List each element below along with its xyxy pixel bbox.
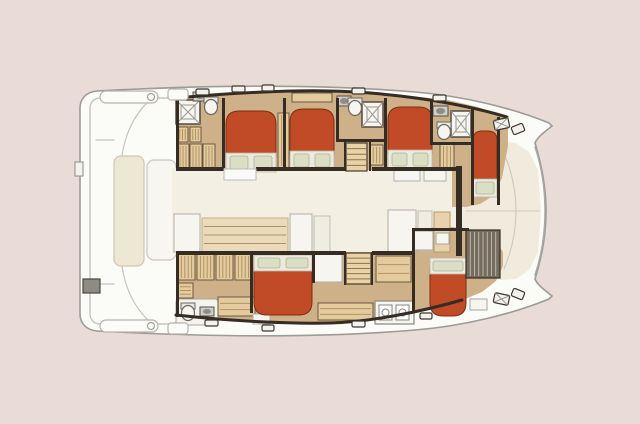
stbd-fwd-wardrobe	[466, 230, 500, 278]
port-closet-3	[203, 144, 215, 169]
floor-plan	[0, 0, 640, 424]
stbd-aft-bulkhead	[176, 251, 179, 317]
port-aft-toilet	[204, 97, 218, 115]
port-wall-3	[336, 98, 339, 142]
port-closet-2	[190, 144, 202, 169]
deck-hatch-7	[262, 325, 274, 331]
salon-cabinet-left	[174, 214, 200, 252]
stbd-wall-2	[312, 253, 315, 283]
stbd-cabinet	[314, 254, 342, 282]
port-wall-1	[222, 98, 225, 168]
port-wall-2	[283, 98, 286, 168]
salon-galley-wood	[434, 212, 450, 252]
stbd-aft-sink	[200, 307, 214, 316]
port-stair-wall-2	[369, 141, 371, 171]
port-forepeak-wall-left	[471, 107, 474, 205]
stbd-stair-wall-1	[344, 252, 346, 285]
engine-hatch-port	[168, 89, 188, 100]
cockpit-bench	[114, 156, 144, 266]
stbd-closet-1	[178, 254, 195, 280]
galley-counter	[376, 256, 411, 282]
deck-hatch-4	[352, 88, 365, 94]
deck-hatch-8	[352, 321, 365, 327]
port-closet-5	[440, 144, 454, 170]
salon-front-bulkhead	[456, 166, 462, 256]
port-shelf-small-2	[190, 127, 201, 142]
port-midhead-wall	[336, 139, 387, 142]
port-wall-4	[384, 98, 387, 168]
stern-step-port	[100, 91, 158, 103]
port-mid-shower	[362, 102, 383, 127]
port-cabin-door	[224, 169, 256, 180]
floor-plan-canvas	[0, 0, 640, 424]
port-fwdhead-wall	[430, 142, 472, 145]
stbd-fwd-bath-unit-2	[436, 233, 449, 244]
stbd-closet-4	[235, 254, 252, 280]
transom-box	[83, 279, 100, 293]
stbd-stair-wall-2	[371, 252, 373, 285]
port-aft-cabin-bed	[226, 111, 276, 172]
port-fwd-shower	[451, 111, 471, 137]
deck-hatch-1	[196, 89, 209, 95]
stbd-companionway-stairs	[346, 253, 371, 284]
port-stair-wall-1	[344, 141, 346, 171]
port-inner-wall-seg2	[256, 167, 344, 171]
port-mid-cabin-bed	[290, 109, 334, 170]
stbd-aft-cabin-bed	[254, 255, 312, 315]
port-inner-wall-seg1	[176, 167, 224, 171]
transom-tab	[75, 162, 83, 176]
port-wall-5	[430, 101, 433, 144]
stbd-desk	[218, 297, 255, 316]
salon-galley-block	[388, 210, 416, 252]
deck-hatch-2	[232, 86, 245, 92]
stbd-fwd-locker	[470, 299, 487, 310]
salon-unit-1	[290, 214, 312, 252]
port-aft-bulkhead	[176, 98, 179, 170]
port-fwd-toilet	[437, 122, 451, 140]
engine-hatch-stbd	[168, 323, 188, 334]
port-forepeak-bed	[473, 131, 497, 197]
salon-sofa-table	[202, 218, 288, 252]
stbd-inner-wall-seg2	[372, 251, 414, 255]
stbd-fwd-bath-unit-1	[414, 231, 433, 250]
cockpit-console	[147, 160, 176, 260]
stbd-bench	[318, 303, 373, 320]
stbd-fwd-cabin-left-wall	[412, 228, 415, 312]
port-mid-toilet	[348, 98, 362, 116]
port-fwd-sink	[433, 106, 448, 116]
deck-hatch-6	[205, 320, 218, 326]
port-closet-4	[370, 145, 383, 165]
port-aft-shower	[176, 100, 200, 124]
stbd-closet-2	[197, 254, 214, 280]
stbd-shelf-steps	[178, 283, 193, 298]
stern-step-stbd	[100, 320, 158, 332]
deck-hatch-9	[420, 313, 432, 319]
port-inner-wall-seg3	[372, 167, 458, 171]
port-companionway-stairs	[346, 143, 367, 171]
port-overhead-shelf	[292, 93, 332, 102]
stbd-closet-3	[216, 254, 233, 280]
deck-hatch-3	[262, 85, 274, 91]
port-fwd-cabin-bed	[388, 107, 432, 169]
deck-hatch-5	[433, 95, 446, 101]
salon-unit-2	[314, 216, 330, 252]
stbd-wall-1	[250, 253, 253, 313]
stbd-inner-wall-seg1	[176, 251, 346, 255]
